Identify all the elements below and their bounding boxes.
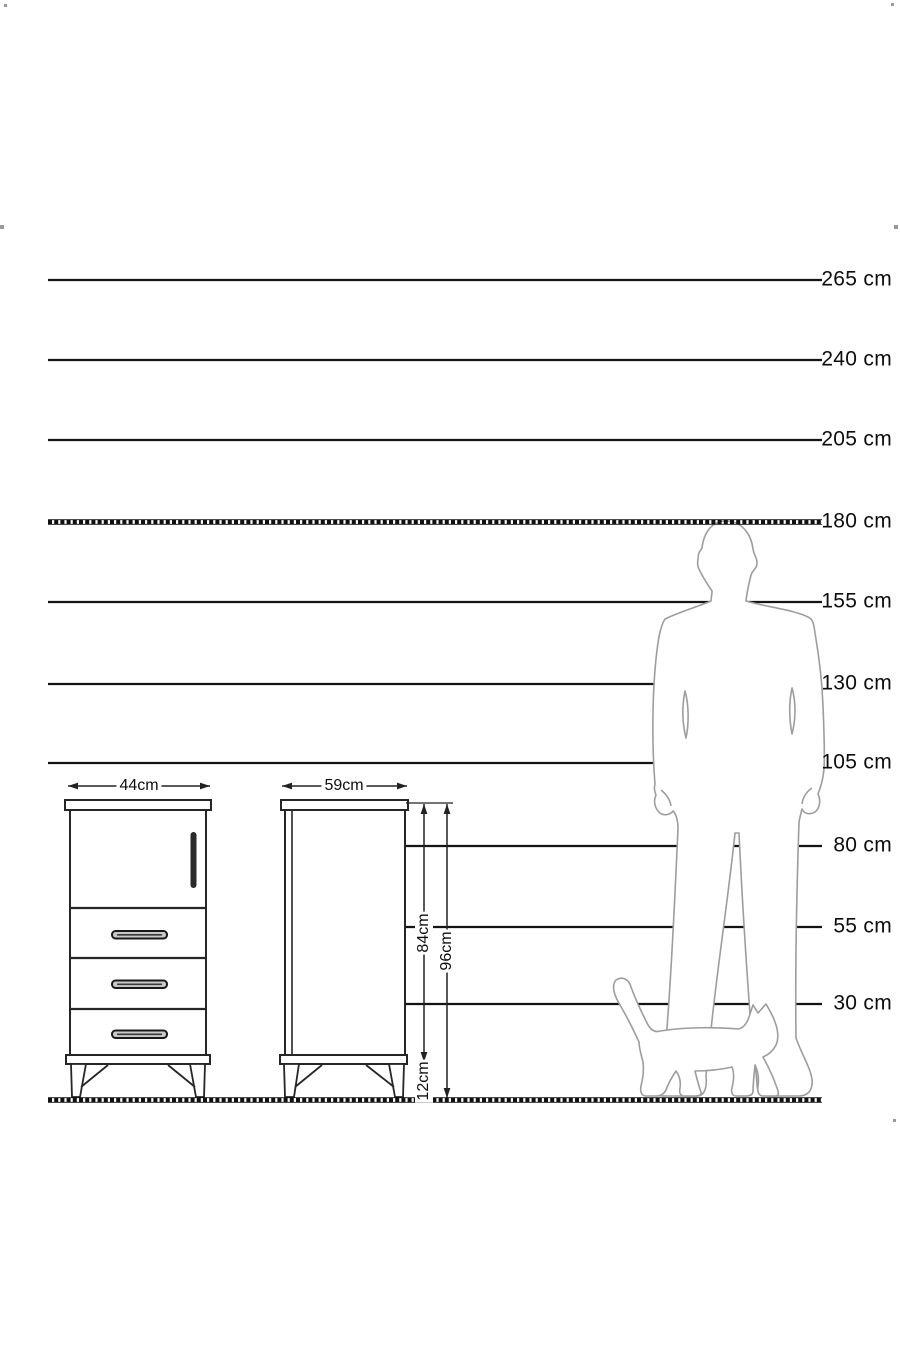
side-leg-left bbox=[284, 1064, 299, 1097]
ruler-label-55: 55 cm bbox=[833, 915, 892, 939]
side-top-panel bbox=[281, 800, 408, 810]
cabinet-front-view bbox=[65, 800, 211, 1097]
total-height-label: 96cm bbox=[438, 929, 456, 972]
side-body bbox=[285, 810, 405, 1056]
side-depth-label: 59cm bbox=[321, 777, 366, 795]
ruler-label-240: 240 cm bbox=[821, 348, 892, 372]
door-handle bbox=[191, 832, 197, 888]
front-leg-left bbox=[71, 1064, 86, 1097]
arrow-down bbox=[444, 1088, 451, 1098]
hatched-line-180 bbox=[48, 520, 822, 525]
arrow-right bbox=[397, 783, 407, 790]
side-bottom-rail bbox=[280, 1055, 407, 1064]
front-legs bbox=[71, 1064, 205, 1097]
side-legs bbox=[284, 1064, 404, 1097]
diagram-canvas bbox=[0, 0, 900, 1350]
front-bottom-rail bbox=[66, 1055, 210, 1064]
ruler-label-30: 30 cm bbox=[833, 992, 892, 1016]
arrow-up bbox=[421, 804, 428, 814]
ruler-label-105: 105 cm bbox=[821, 751, 892, 775]
ruler-label-265: 265 cm bbox=[821, 268, 892, 292]
ground-line bbox=[48, 1098, 822, 1103]
ruler-label-80: 80 cm bbox=[833, 834, 892, 858]
front-leg-right bbox=[190, 1064, 205, 1097]
cabinet-side-view bbox=[280, 800, 408, 1097]
ruler-label-180: 180 cm bbox=[821, 510, 892, 534]
man-outline bbox=[652, 521, 825, 1096]
front-top-panel bbox=[65, 800, 211, 810]
ruler-label-130: 130 cm bbox=[821, 672, 892, 696]
arrow-left bbox=[282, 783, 292, 790]
leg-height-label: 12cm bbox=[415, 1059, 433, 1102]
front-width-label: 44cm bbox=[116, 777, 161, 795]
arrow-up bbox=[444, 804, 451, 814]
arrow-left bbox=[68, 783, 78, 790]
man-silhouette bbox=[652, 521, 825, 1096]
ruler-label-155: 155 cm bbox=[821, 590, 892, 614]
dimension-diagram: 265 cm 240 cm 205 cm 180 cm 155 cm 130 c… bbox=[0, 0, 900, 1350]
carcass-height-label: 84cm bbox=[415, 911, 433, 954]
arrow-right bbox=[200, 783, 210, 790]
man-arm-slit-right bbox=[790, 688, 795, 734]
ruler-label-205: 205 cm bbox=[821, 428, 892, 452]
side-leg-right bbox=[389, 1064, 404, 1097]
